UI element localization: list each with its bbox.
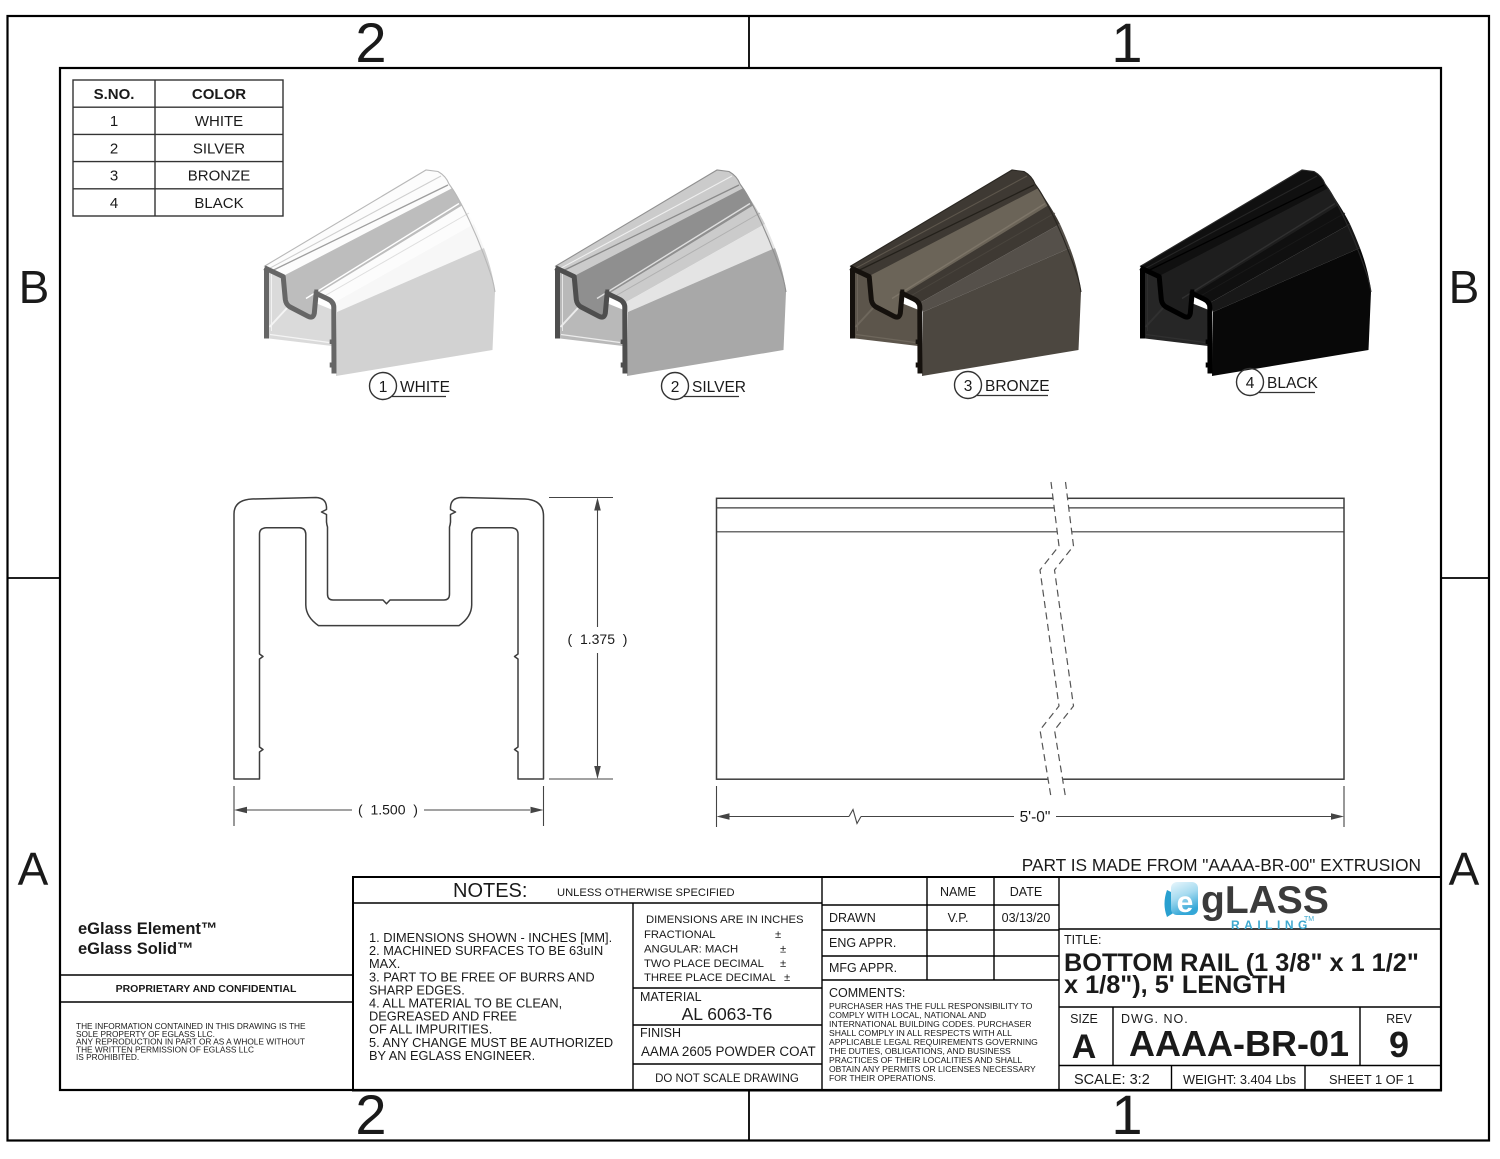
svg-text:RAILING: RAILING xyxy=(1231,918,1312,932)
svg-text:TWO PLACE DECIMAL: TWO PLACE DECIMAL xyxy=(644,958,764,970)
svg-text:B: B xyxy=(19,261,50,313)
svg-text:TITLE:: TITLE: xyxy=(1064,933,1102,947)
svg-text:SILVER: SILVER xyxy=(193,140,245,157)
svg-text:SHEET 1 OF 1: SHEET 1 OF 1 xyxy=(1329,1072,1414,1087)
svg-text:S.NO.: S.NO. xyxy=(94,86,135,103)
svg-text:COMMENTS:: COMMENTS: xyxy=(829,986,905,1000)
svg-text:1: 1 xyxy=(379,379,388,396)
svg-text:AL 6063-T6: AL 6063-T6 xyxy=(682,1004,773,1024)
svg-text:COLOR: COLOR xyxy=(192,86,246,103)
svg-text:x 1/8"), 5' LENGTH: x 1/8"), 5' LENGTH xyxy=(1064,971,1286,999)
svg-text:WHITE: WHITE xyxy=(195,113,243,130)
svg-text:±: ± xyxy=(775,929,781,941)
svg-text:eGlass Element™: eGlass Element™ xyxy=(78,920,217,938)
svg-text:3: 3 xyxy=(964,378,973,395)
svg-text:SCALE: 3:2: SCALE: 3:2 xyxy=(1074,1072,1150,1088)
svg-text:( 1.375 ): ( 1.375 ) xyxy=(568,631,628,647)
svg-text:ANGULAR: MACH: ANGULAR: MACH xyxy=(644,944,738,956)
svg-text:BRONZE: BRONZE xyxy=(985,378,1050,395)
svg-text:1: 1 xyxy=(1111,11,1142,74)
svg-text:( 1.500 ): ( 1.500 ) xyxy=(358,802,418,818)
svg-text:WHITE: WHITE xyxy=(400,379,450,396)
svg-text:PART IS MADE FROM "AAAA-BR-00": PART IS MADE FROM "AAAA-BR-00" EXTRUSION xyxy=(1022,855,1421,875)
svg-text:A: A xyxy=(1449,843,1480,895)
svg-text:eGlass Solid™: eGlass Solid™ xyxy=(78,940,194,958)
svg-text:TM: TM xyxy=(1304,916,1314,923)
svg-text:3: 3 xyxy=(110,168,118,185)
svg-text:03/13/20: 03/13/20 xyxy=(1002,911,1051,925)
svg-text:UNLESS OTHERWISE SPECIFIED: UNLESS OTHERWISE SPECIFIED xyxy=(557,887,735,899)
svg-text:2: 2 xyxy=(355,1083,386,1146)
svg-text:±: ± xyxy=(784,972,790,984)
svg-text:±: ± xyxy=(780,958,786,970)
svg-text:2. MACHINED SURFACES TO BE 63u: 2. MACHINED SURFACES TO BE 63uIN xyxy=(369,943,603,958)
svg-text:B: B xyxy=(1449,261,1480,313)
svg-text:BLACK: BLACK xyxy=(194,195,243,212)
svg-text:2: 2 xyxy=(110,140,118,157)
svg-text:4: 4 xyxy=(1246,375,1255,392)
svg-text:A: A xyxy=(1072,1028,1097,1066)
svg-text:BLACK: BLACK xyxy=(1267,375,1318,392)
svg-text:9: 9 xyxy=(1389,1024,1409,1065)
svg-text:ENG APPR.: ENG APPR. xyxy=(829,936,896,950)
svg-text:SILVER: SILVER xyxy=(692,379,746,396)
svg-text:±: ± xyxy=(780,944,786,956)
svg-text:IS PROHIBITED.: IS PROHIBITED. xyxy=(76,1052,139,1062)
svg-text:5'-0": 5'-0" xyxy=(1020,809,1051,826)
svg-text:DIMENSIONS ARE IN INCHES: DIMENSIONS ARE IN INCHES xyxy=(646,914,804,926)
svg-text:FRACTIONAL: FRACTIONAL xyxy=(644,929,716,941)
svg-text:DATE: DATE xyxy=(1010,885,1042,899)
svg-text:AAMA 2605 POWDER COAT: AAMA 2605 POWDER COAT xyxy=(641,1044,816,1059)
svg-text:e: e xyxy=(1177,886,1194,919)
svg-text:1: 1 xyxy=(1111,1083,1142,1146)
svg-text:BRONZE: BRONZE xyxy=(188,168,251,185)
svg-text:NAME: NAME xyxy=(940,885,976,899)
svg-text:AAAA-BR-01: AAAA-BR-01 xyxy=(1129,1023,1349,1064)
svg-text:MATERIAL: MATERIAL xyxy=(640,990,702,1004)
svg-text:4: 4 xyxy=(110,195,118,212)
svg-text:2: 2 xyxy=(671,379,680,396)
svg-text:V.P.: V.P. xyxy=(948,911,969,925)
svg-text:DO NOT SCALE DRAWING: DO NOT SCALE DRAWING xyxy=(655,1073,799,1085)
svg-text:BY AN EGLASS ENGINEER.: BY AN EGLASS ENGINEER. xyxy=(369,1048,535,1063)
svg-text:WEIGHT: 3.404 Lbs: WEIGHT: 3.404 Lbs xyxy=(1183,1072,1296,1087)
svg-text:PROPRIETARY AND CONFIDENTIAL: PROPRIETARY AND CONFIDENTIAL xyxy=(116,983,297,995)
svg-text:MFG APPR.: MFG APPR. xyxy=(829,961,897,975)
svg-text:DRAWN: DRAWN xyxy=(829,911,876,925)
svg-text:2: 2 xyxy=(355,11,386,74)
svg-text:FOR THEIR OPERATIONS.: FOR THEIR OPERATIONS. xyxy=(829,1073,936,1083)
svg-text:THREE PLACE DECIMAL: THREE PLACE DECIMAL xyxy=(644,972,776,984)
svg-text:NOTES:: NOTES: xyxy=(453,880,527,902)
svg-text:1: 1 xyxy=(110,113,118,130)
svg-text:FINISH: FINISH xyxy=(640,1026,681,1040)
svg-text:A: A xyxy=(18,843,49,895)
svg-text:SIZE: SIZE xyxy=(1070,1012,1098,1026)
